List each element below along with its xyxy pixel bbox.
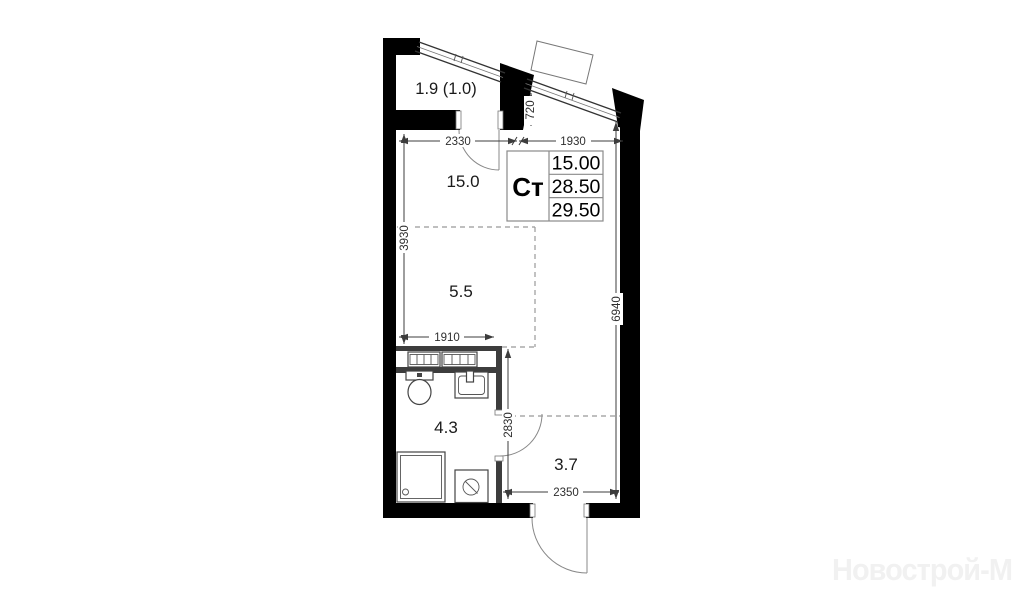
window-band2-tick (565, 91, 567, 98)
wall-top-stub (383, 38, 420, 55)
partition-bathroom-east-lower (496, 460, 502, 503)
room-label-hallway: 3.7 (554, 455, 578, 474)
exterior-block-outline (531, 41, 593, 84)
area-value-net: 28.50 (552, 176, 601, 198)
toilet-bowl (408, 380, 431, 405)
entrance-door-arc (532, 518, 587, 573)
partition-kitchen-top (396, 346, 501, 351)
toilet-tank-button (417, 373, 422, 377)
sink-tap (467, 371, 474, 382)
dim-2350-label: 2350 (553, 487, 579, 499)
dim-2830-label: 2830 (503, 412, 515, 438)
balcony-door-jamb-right (498, 111, 503, 129)
window-band1-mid (417, 47, 503, 78)
bathroom-door-jamb-top (495, 410, 503, 415)
area-value-total: 29.50 (552, 199, 601, 221)
window-band2-outer (527, 79, 621, 113)
entrance-door-jamb-left (530, 504, 535, 517)
room-label-bathroom: 4.3 (434, 418, 458, 437)
bathroom-door-jamb-bottom (495, 456, 503, 461)
dim-720-label: 720 (525, 100, 537, 119)
window-band2-inner (524, 88, 618, 122)
dim-1910-label: 1910 (434, 332, 460, 344)
floorplan-canvas: Новострой-М (0, 0, 1024, 614)
balcony-door-jamb-left (456, 111, 461, 129)
room-label-balcony: 1.9 (1.0) (415, 80, 476, 98)
window-band2-mid (526, 84, 620, 118)
partition-bathroom-east-upper (496, 346, 502, 414)
watermark-text: Новострой-М (832, 552, 1012, 587)
area-value-living: 15.00 (552, 153, 601, 175)
entrance-door-jamb-right (584, 504, 589, 517)
area-table: Ст 15.00 28.50 29.50 (507, 151, 603, 221)
wall-bottom-left (383, 503, 533, 518)
wall-bottom-right (586, 503, 640, 518)
dim-3930-label: 3930 (399, 225, 411, 251)
room-label-living: 15.0 (446, 172, 479, 191)
washing-machine (455, 470, 488, 503)
dim-1930-label: 1930 (560, 136, 586, 148)
wall-balcony-divider (383, 110, 460, 130)
room-label-kitchen-zone: 5.5 (449, 282, 473, 301)
dim-2330-label: 2330 (445, 136, 471, 148)
apartment-type-label: Ст (512, 172, 544, 202)
dim-6940-label: 6940 (611, 296, 623, 322)
outer-walls (383, 38, 644, 518)
